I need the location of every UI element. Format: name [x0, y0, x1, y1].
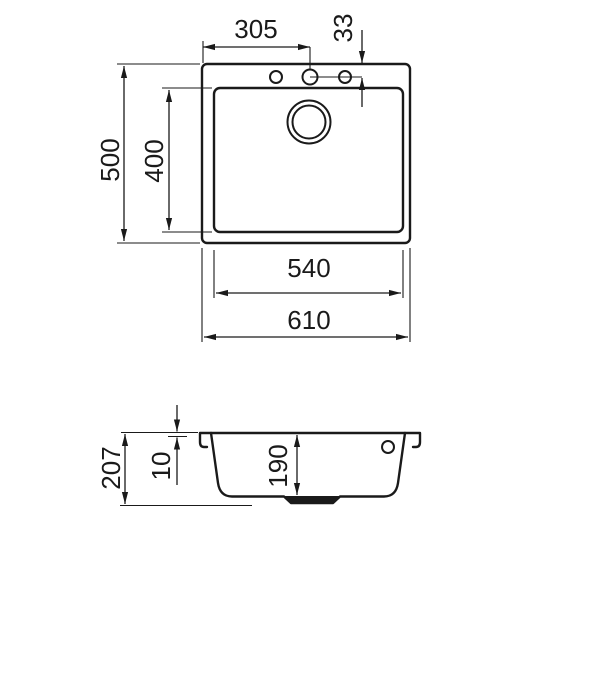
- dimension-33-label: 33: [328, 14, 358, 43]
- sink-technical-drawing: 305 33 500 400: [0, 0, 600, 689]
- tap-hole-left: [270, 71, 282, 83]
- dimension-540: 540: [214, 250, 403, 298]
- dimension-540-label: 540: [287, 253, 330, 283]
- section-bowl-outline: [211, 433, 405, 503]
- dimension-10: 10: [146, 405, 187, 485]
- drain-inner-circle: [293, 106, 326, 139]
- drain-outer-circle: [288, 101, 331, 144]
- dimension-10-label: 10: [146, 452, 176, 481]
- sink-bowl-outline: [214, 88, 403, 232]
- dimension-190: 190: [263, 435, 297, 495]
- section-drain-boss: [283, 496, 341, 504]
- dimension-190-label: 190: [263, 444, 293, 487]
- dimension-400-label: 400: [139, 139, 169, 182]
- drawing-svg: 305 33 500 400: [0, 0, 600, 689]
- dimension-500-label: 500: [95, 138, 125, 181]
- section-view: 207 10 190: [96, 405, 420, 506]
- sink-outer-outline: [202, 64, 410, 243]
- dimension-305: 305: [203, 14, 310, 70]
- dimension-610-label: 610: [287, 305, 330, 335]
- dimension-305-label: 305: [234, 14, 277, 44]
- section-overflow-hole: [382, 441, 394, 453]
- section-rim-outline: [200, 433, 420, 447]
- dimension-207-label: 207: [96, 446, 126, 489]
- dimension-33: 33: [328, 14, 362, 107]
- top-view: 305 33 500 400: [95, 14, 410, 342]
